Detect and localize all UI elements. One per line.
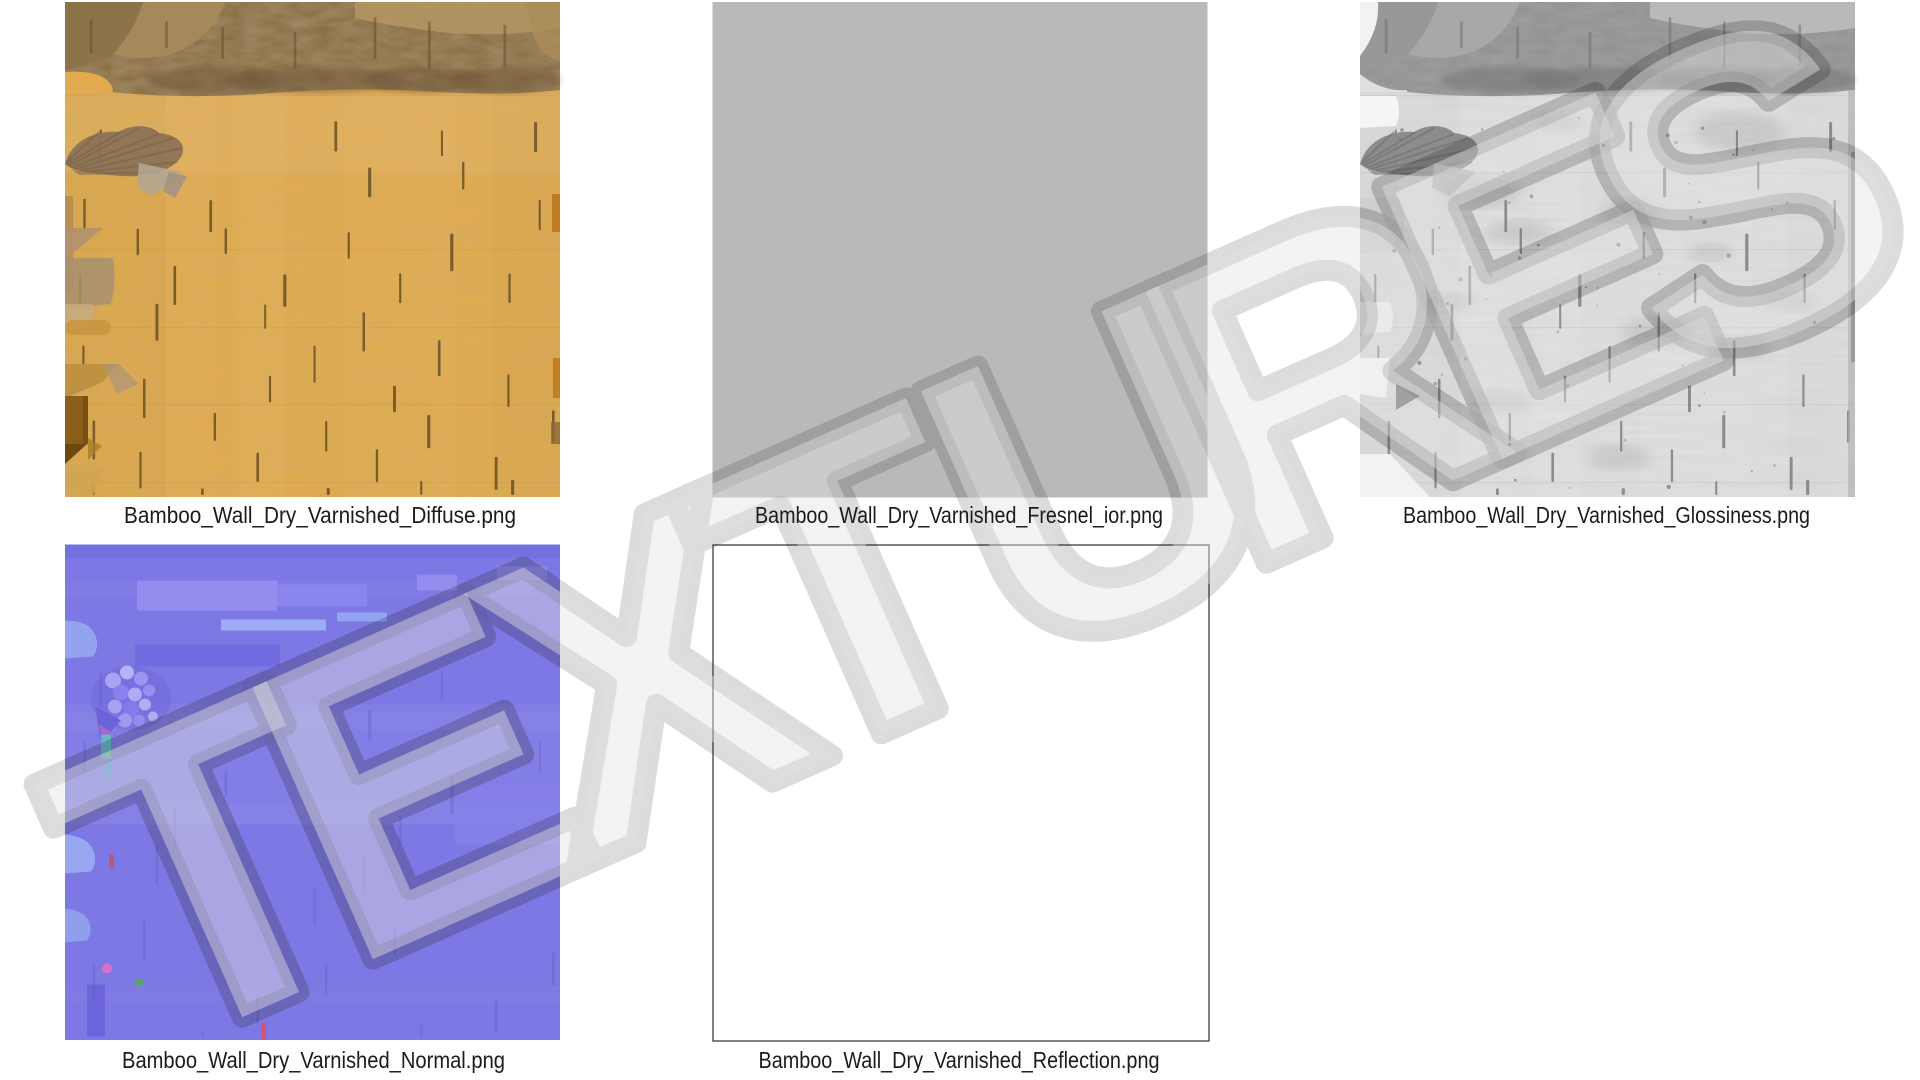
svg-text:Bamboo_Wall_Dry_Varnished_Diff: Bamboo_Wall_Dry_Varnished_Diffuse.png [124,502,516,528]
svg-text:Bamboo_Wall_Dry_Varnished_Refl: Bamboo_Wall_Dry_Varnished_Reflection.png [759,1047,1160,1073]
svg-text:Bamboo_Wall_Dry_Varnished_Norm: Bamboo_Wall_Dry_Varnished_Normal.png [122,1047,505,1073]
svg-text:Bamboo_Wall_Dry_Varnished_Glos: Bamboo_Wall_Dry_Varnished_Glossiness.png [1403,502,1810,528]
svg-text:Bamboo_Wall_Dry_Varnished_Fres: Bamboo_Wall_Dry_Varnished_Fresnel_ior.pn… [755,502,1163,528]
